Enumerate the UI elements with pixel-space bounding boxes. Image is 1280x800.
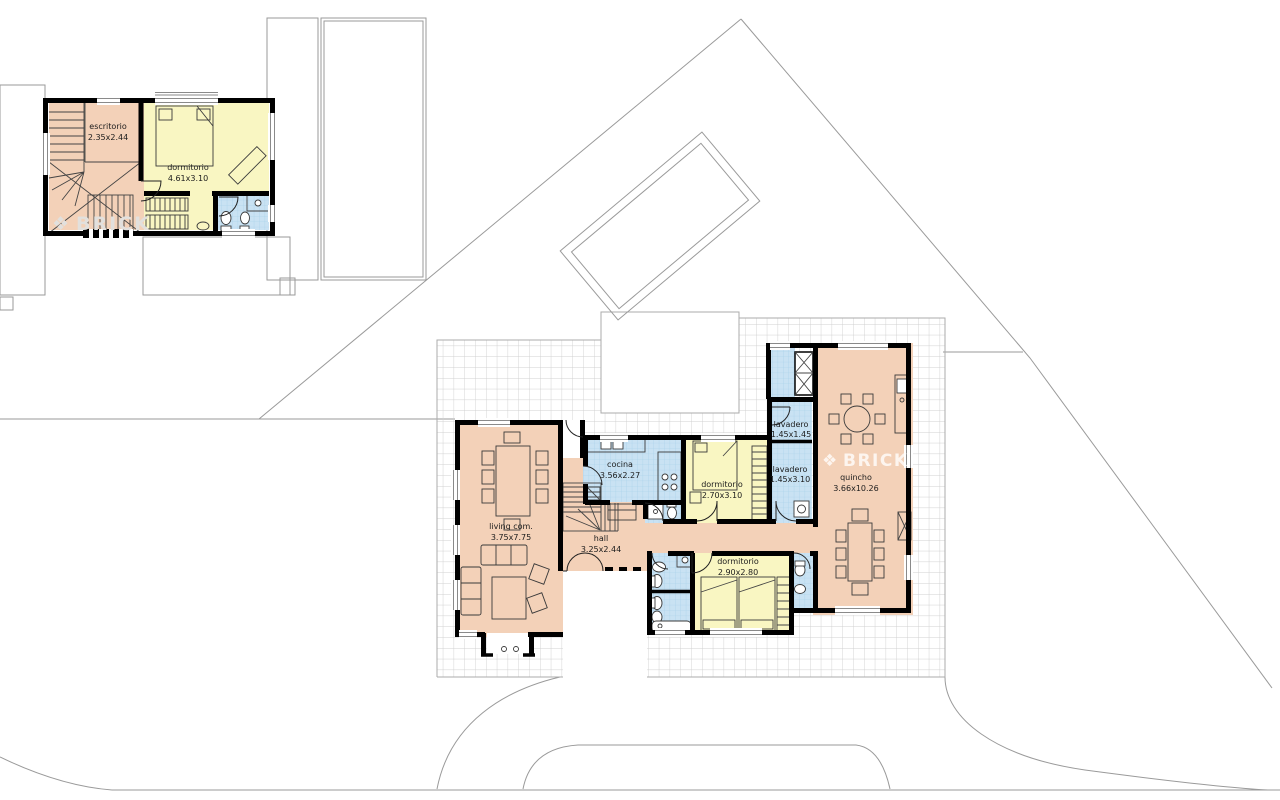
room-dormitorio-1 [683,435,767,523]
room-label: dormitorio [717,557,759,566]
brick-watermark-upper: ❖ BRICK [52,213,151,235]
room-dims: 4.61x3.10 [168,174,208,183]
room-label: hall [594,534,608,543]
terrace-door-nook [561,420,583,458]
brick-watermark-text: BRICK [76,213,151,235]
room-label: quincho [840,473,872,482]
room-dims: 2.35x2.44 [88,133,128,142]
room-dims: 1.45x1.45 [771,430,811,439]
entry-porch [487,633,529,654]
room-label: lavadero [773,465,808,474]
room-label: escritorio [89,122,127,131]
brick-logo-icon: ❖ [822,451,839,471]
brick-logo-icon: ❖ [52,213,71,235]
room-dims: 2.90x2.80 [718,568,758,577]
room-dims: 1.45x3.10 [770,475,810,484]
room-dims: 3.75x7.75 [491,533,531,542]
brick-watermark-text: BRICK [843,451,909,471]
closet-box [795,352,813,395]
room-dims: 2.70x3.10 [702,491,742,500]
corridor [645,523,818,553]
room-label: dormitorio [167,163,209,172]
room-dims: 3.56x2.27 [600,471,640,480]
floor-plan-canvas: escritorio 2.35x2.44 dormitorio 4.61x3.1… [0,0,1280,800]
upper-floor-plan: escritorio 2.35x2.44 dormitorio 4.61x3.1… [41,93,277,239]
room-dims: 3.25x2.44 [581,545,621,554]
brick-watermark-main: ❖ BRICK [822,451,909,471]
room-label: cocina [607,460,633,469]
deck-cutout [601,312,739,413]
room-dims: 3.66x10.26 [833,484,878,493]
room-label: lavadero [774,420,809,429]
entry-walkway [563,571,647,677]
room-label: dormitorio [701,480,743,489]
room-label: living com. [489,522,533,531]
